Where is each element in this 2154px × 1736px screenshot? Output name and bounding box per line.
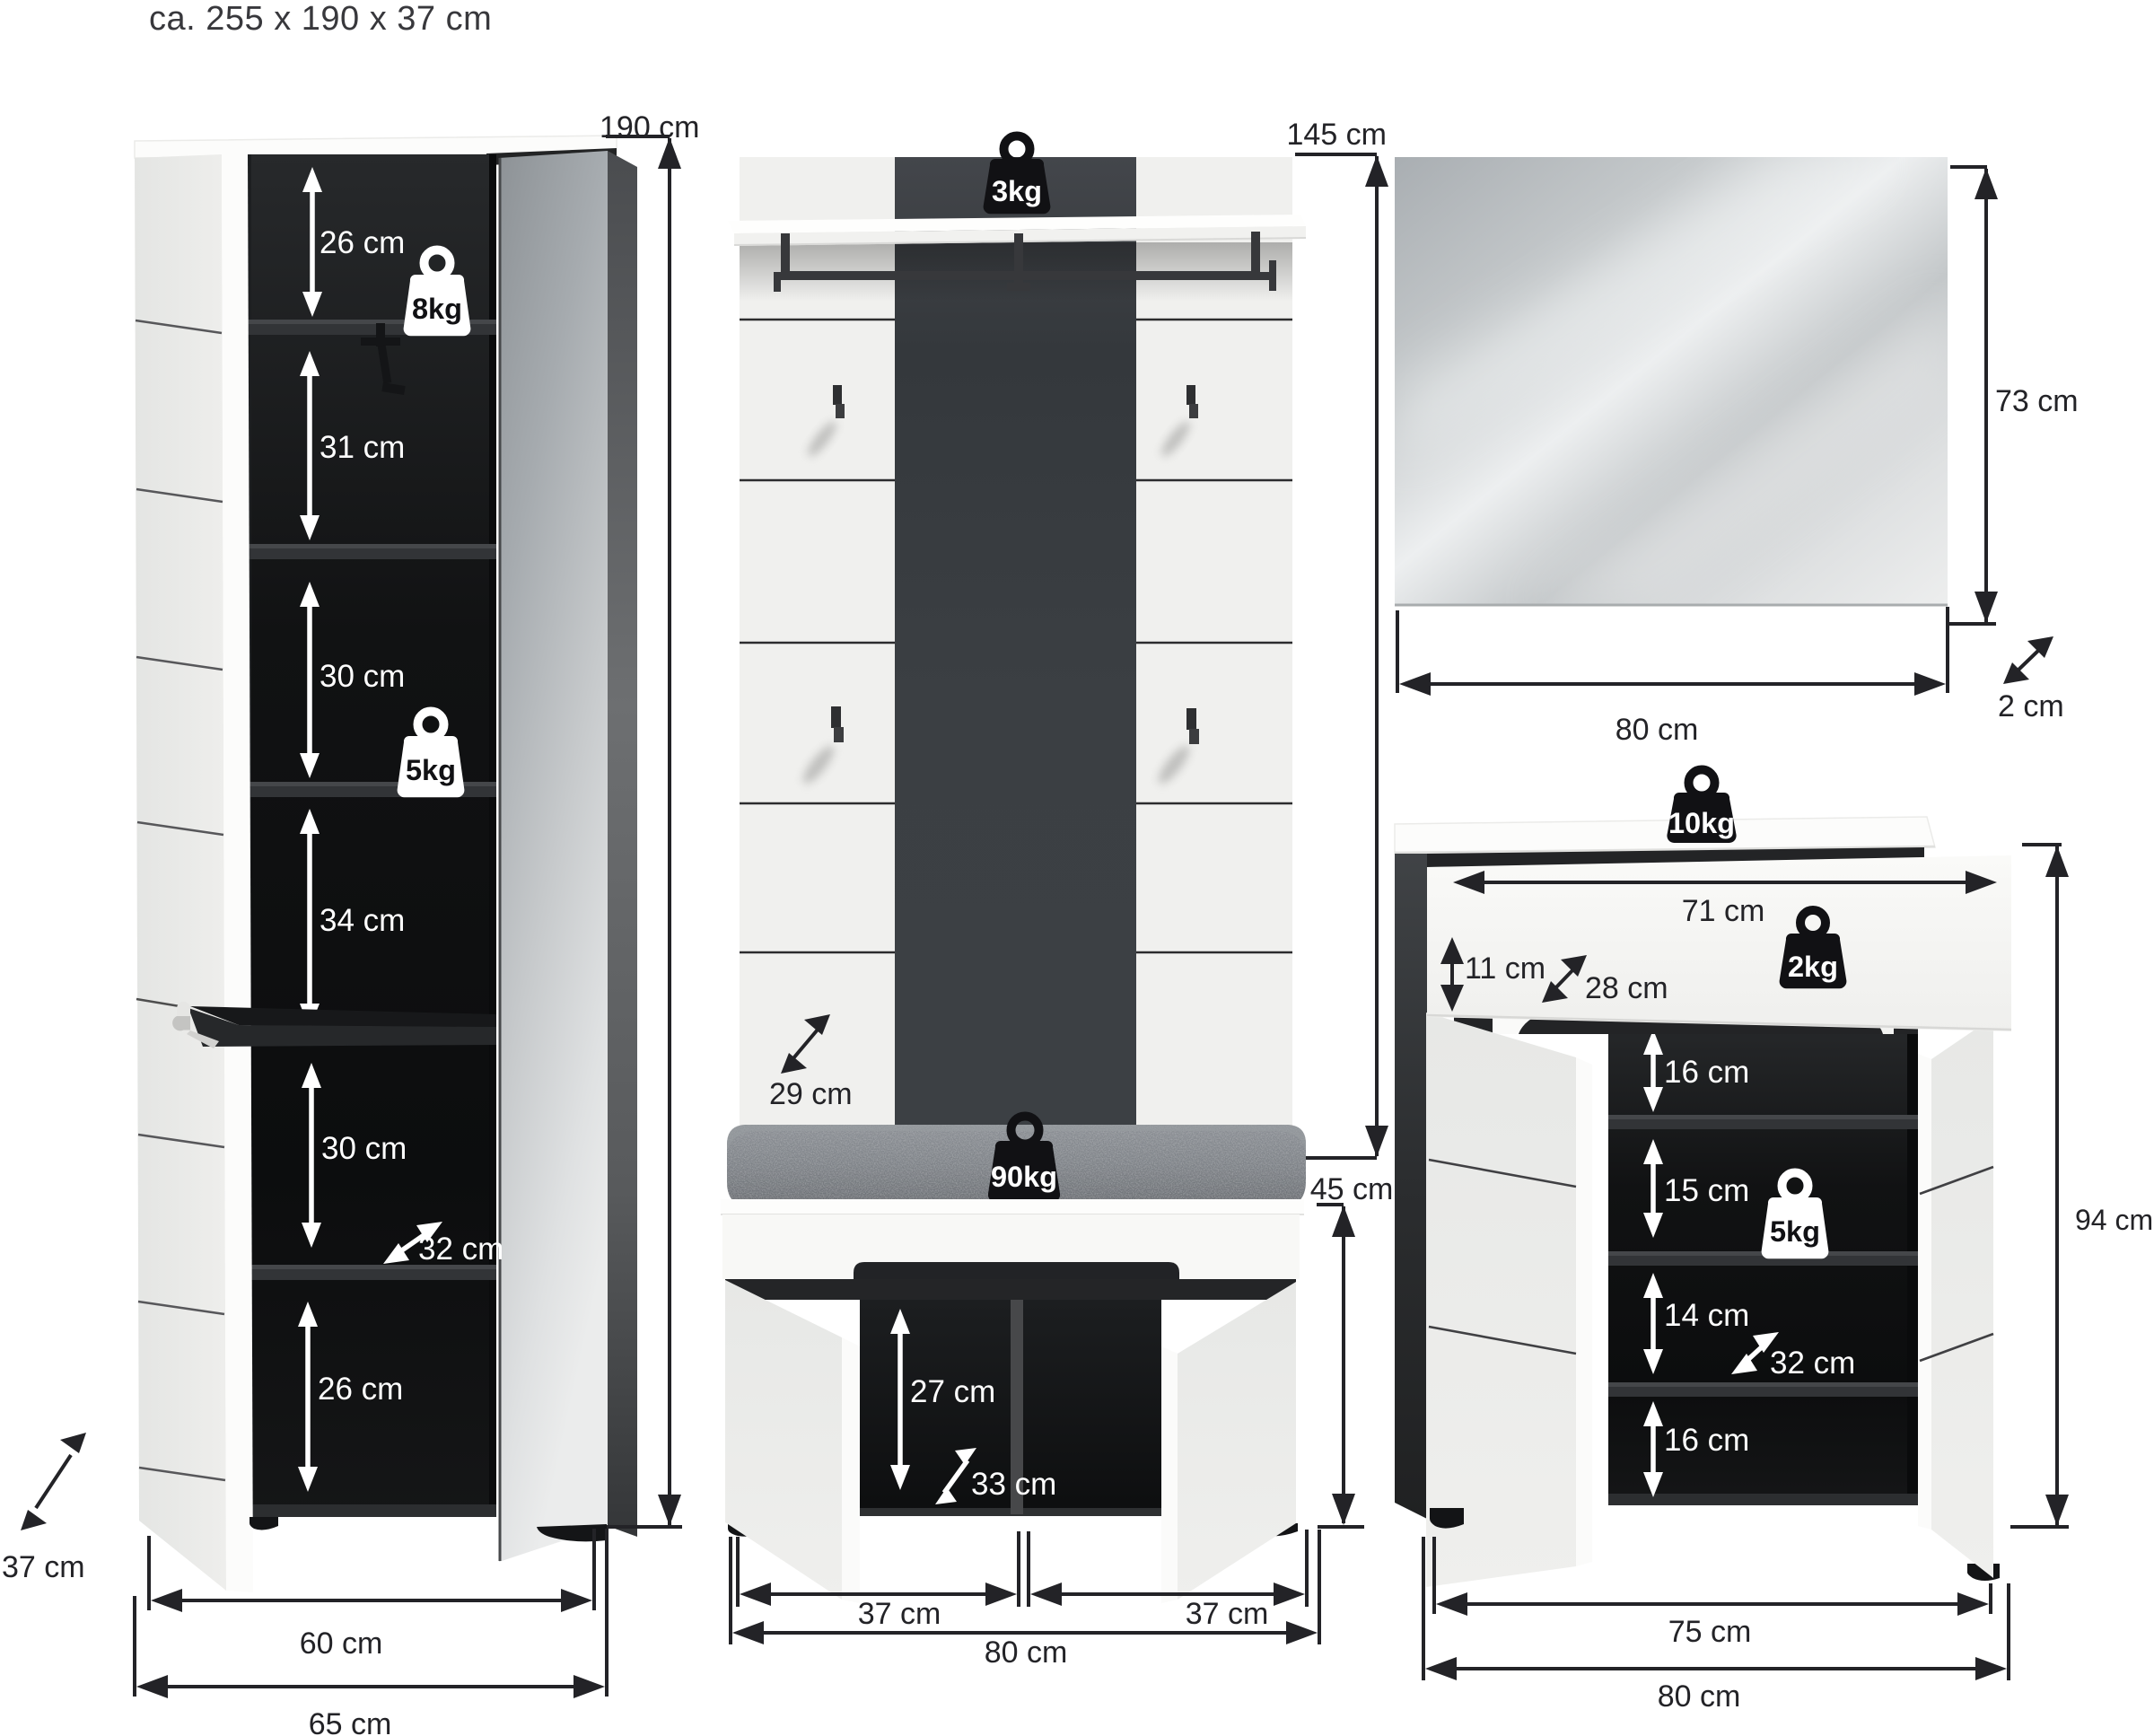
svg-text:45 cm: 45 cm xyxy=(1310,1172,1394,1206)
svg-text:32 cm: 32 cm xyxy=(1770,1346,1855,1381)
svg-text:14 cm: 14 cm xyxy=(1664,1298,1749,1333)
svg-text:65 cm: 65 cm xyxy=(309,1707,392,1736)
svg-text:2kg: 2kg xyxy=(1788,951,1838,983)
svg-text:27 cm: 27 cm xyxy=(910,1374,995,1409)
svg-text:37 cm: 37 cm xyxy=(2,1550,85,1584)
svg-text:15 cm: 15 cm xyxy=(1664,1173,1749,1208)
svg-text:5kg: 5kg xyxy=(406,754,456,786)
svg-text:73 cm: 73 cm xyxy=(1995,384,2079,418)
svg-text:11 cm: 11 cm xyxy=(1465,951,1545,986)
svg-text:34 cm: 34 cm xyxy=(320,903,405,938)
svg-text:80 cm: 80 cm xyxy=(1658,1679,1741,1714)
svg-text:60 cm: 60 cm xyxy=(300,1626,383,1661)
svg-text:37 cm: 37 cm xyxy=(1186,1597,1269,1631)
svg-text:29 cm: 29 cm xyxy=(769,1077,853,1111)
svg-text:94 cm: 94 cm xyxy=(2075,1204,2153,1236)
svg-text:30 cm: 30 cm xyxy=(321,1131,407,1166)
svg-text:190 cm: 190 cm xyxy=(600,110,700,145)
svg-text:90kg: 90kg xyxy=(991,1161,1057,1193)
svg-text:5kg: 5kg xyxy=(1770,1215,1820,1248)
svg-text:80 cm: 80 cm xyxy=(985,1635,1068,1670)
svg-text:75 cm: 75 cm xyxy=(1668,1615,1752,1649)
svg-text:16 cm: 16 cm xyxy=(1664,1055,1749,1090)
svg-text:33 cm: 33 cm xyxy=(971,1467,1056,1502)
svg-text:145 cm: 145 cm xyxy=(1287,118,1388,152)
svg-text:31 cm: 31 cm xyxy=(320,430,405,465)
svg-text:16 cm: 16 cm xyxy=(1664,1423,1749,1458)
svg-text:71 cm: 71 cm xyxy=(1682,894,1765,928)
svg-text:ca. 255 x 190 x 37 cm: ca. 255 x 190 x 37 cm xyxy=(149,0,492,38)
svg-text:8kg: 8kg xyxy=(412,293,462,325)
svg-text:26 cm: 26 cm xyxy=(320,225,405,260)
svg-text:80 cm: 80 cm xyxy=(1615,713,1699,747)
svg-text:2 cm: 2 cm xyxy=(1998,689,2064,723)
svg-text:10kg: 10kg xyxy=(1668,807,1735,839)
svg-text:3kg: 3kg xyxy=(992,175,1042,207)
svg-text:26 cm: 26 cm xyxy=(318,1372,403,1407)
svg-text:28 cm: 28 cm xyxy=(1585,971,1668,1005)
svg-text:30 cm: 30 cm xyxy=(320,659,405,694)
svg-text:37 cm: 37 cm xyxy=(858,1597,941,1631)
svg-text:32 cm: 32 cm xyxy=(418,1232,503,1267)
